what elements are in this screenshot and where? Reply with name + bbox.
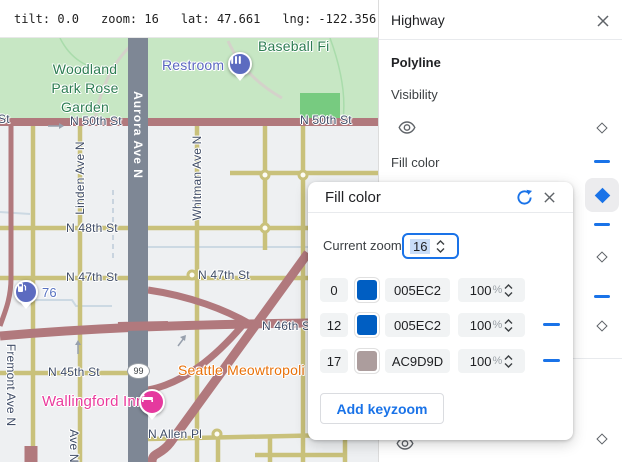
- opacity-stepper[interactable]: 100%: [458, 313, 525, 337]
- current-zoom-stepper[interactable]: 16: [402, 233, 459, 259]
- street-label-n46th: N 46th St: [262, 319, 314, 333]
- style-panel-header: Highway: [379, 0, 622, 40]
- opacity-value: 100: [470, 318, 492, 333]
- color-swatch[interactable]: [357, 280, 377, 300]
- keyzoom-level-field[interactable]: 12: [320, 313, 348, 337]
- keyzoom-diamond-icon[interactable]: [596, 433, 607, 444]
- close-icon: [543, 191, 556, 204]
- street-label-n50th-left: N 50th St: [70, 114, 129, 128]
- lodging-pin[interactable]: [139, 389, 165, 415]
- keyzoom-diamond-filled-icon: [594, 187, 610, 203]
- hex-color-field[interactable]: AC9D9D: [385, 349, 450, 373]
- fill-color-dialog: Fill color Current zoom 16 0 005EC2: [308, 182, 573, 440]
- stepper-chevrons-icon[interactable]: [436, 239, 445, 254]
- keyzoom-row: 12 005EC2 100%: [308, 313, 573, 337]
- tilt-readout: tilt: 0.0: [14, 12, 79, 26]
- hex-color-field[interactable]: 005EC2: [385, 278, 450, 302]
- opacity-stepper[interactable]: 100%: [458, 278, 525, 302]
- reset-button[interactable]: [514, 187, 534, 207]
- lng-readout: lng: -122.356: [282, 12, 376, 26]
- lat-readout: lat: 47.661: [181, 12, 260, 26]
- street-label-n47th-right: N 47th St: [198, 268, 250, 282]
- bed-icon: [141, 391, 154, 404]
- visibility-label: Visibility: [391, 87, 438, 102]
- close-icon: [596, 14, 610, 28]
- keyzoom-diamond-icon[interactable]: [596, 122, 607, 133]
- reset-icon: [516, 189, 533, 206]
- polyline-section-title: Polyline: [391, 55, 441, 70]
- current-zoom-label: Current zoom: [323, 238, 402, 253]
- remove-keyzoom-button[interactable]: [543, 323, 560, 326]
- street-label-n50th-right: N 50th St: [300, 113, 352, 127]
- keyzoom-selected-marker[interactable]: [585, 178, 619, 212]
- poi-label-wallingford-inn: Wallingford Inn: [42, 393, 145, 410]
- zoom-readout: zoom: 16: [101, 12, 159, 26]
- street-label-aurora: Aurora Ave N: [131, 91, 145, 179]
- street-label-ave-n: Ave N: [67, 429, 81, 462]
- keyzoom-dash-icon[interactable]: [594, 295, 610, 298]
- opacity-stepper[interactable]: 100%: [458, 349, 525, 373]
- gas-pump-icon: [16, 282, 27, 293]
- street-label-linden: Linden Ave N: [73, 141, 87, 215]
- percent-sign: %: [492, 355, 502, 367]
- opacity-value: 100: [470, 354, 492, 369]
- keyzoom-dash-icon[interactable]: [594, 160, 610, 163]
- keyzoom-level-field[interactable]: 17: [320, 349, 348, 373]
- panel-title: Highway: [391, 12, 445, 28]
- restroom-pin[interactable]: [228, 52, 252, 76]
- poi-label-seattle-meowtropolitan: Seattle Meowtropoli: [178, 362, 305, 378]
- park-label: Woodland Park Rose Garden: [35, 60, 135, 117]
- restroom-label: Restroom: [162, 57, 224, 73]
- color-swatch[interactable]: [357, 315, 377, 335]
- fill-color-label: Fill color: [391, 155, 439, 170]
- keyzoom-level-field[interactable]: 0: [320, 278, 348, 302]
- panel-close-button[interactable]: [595, 13, 611, 29]
- add-keyzoom-button[interactable]: Add keyzoom: [320, 393, 444, 424]
- keyzoom-diamond-icon[interactable]: [596, 320, 607, 331]
- map-style-editor: Woodland Park Rose Garden Baseball Fi Re…: [0, 0, 622, 462]
- keyzoom-row: 0 005EC2 100%: [308, 278, 573, 302]
- current-zoom-value[interactable]: 16: [410, 239, 430, 254]
- keyzoom-diamond-icon[interactable]: [596, 251, 607, 262]
- percent-sign: %: [492, 319, 502, 331]
- remove-keyzoom-button[interactable]: [543, 359, 560, 362]
- hex-color-field[interactable]: 005EC2: [385, 313, 450, 337]
- street-label-n45th: N 45th St: [48, 365, 100, 379]
- street-label-whitman: Whitman Ave N: [190, 135, 204, 220]
- opacity-value: 100: [470, 283, 492, 298]
- stepper-chevrons-icon: [504, 318, 513, 333]
- street-label-n48th: N 48th St: [66, 221, 118, 235]
- percent-sign: %: [492, 284, 502, 296]
- baseball-field-label: Baseball Fi: [258, 38, 329, 54]
- visibility-toggle[interactable]: [396, 119, 418, 135]
- street-label-fremont: Fremont Ave N: [4, 344, 18, 426]
- gas-station-pin[interactable]: [14, 280, 38, 304]
- route-99-shield: 99: [127, 363, 150, 379]
- camera-status-bar: tilt: 0.0 zoom: 16 lat: 47.661 lng: -122…: [0, 0, 378, 38]
- street-label-n47th-left: N 47th St: [66, 270, 118, 284]
- color-swatch[interactable]: [357, 351, 377, 371]
- eye-icon: [398, 121, 416, 134]
- keyzoom-dash-icon[interactable]: [594, 223, 610, 226]
- dialog-close-button[interactable]: [542, 190, 557, 205]
- street-label-st-edge: St: [0, 112, 10, 126]
- restroom-icon: [230, 54, 242, 66]
- keyzoom-row: 17 AC9D9D 100%: [308, 349, 573, 373]
- poi-label-76: 76: [42, 285, 57, 300]
- dialog-title: Fill color: [325, 189, 381, 206]
- stepper-chevrons-icon: [504, 283, 513, 298]
- street-label-n-allen: N Allen Pl: [148, 427, 202, 441]
- stepper-chevrons-icon: [504, 354, 513, 369]
